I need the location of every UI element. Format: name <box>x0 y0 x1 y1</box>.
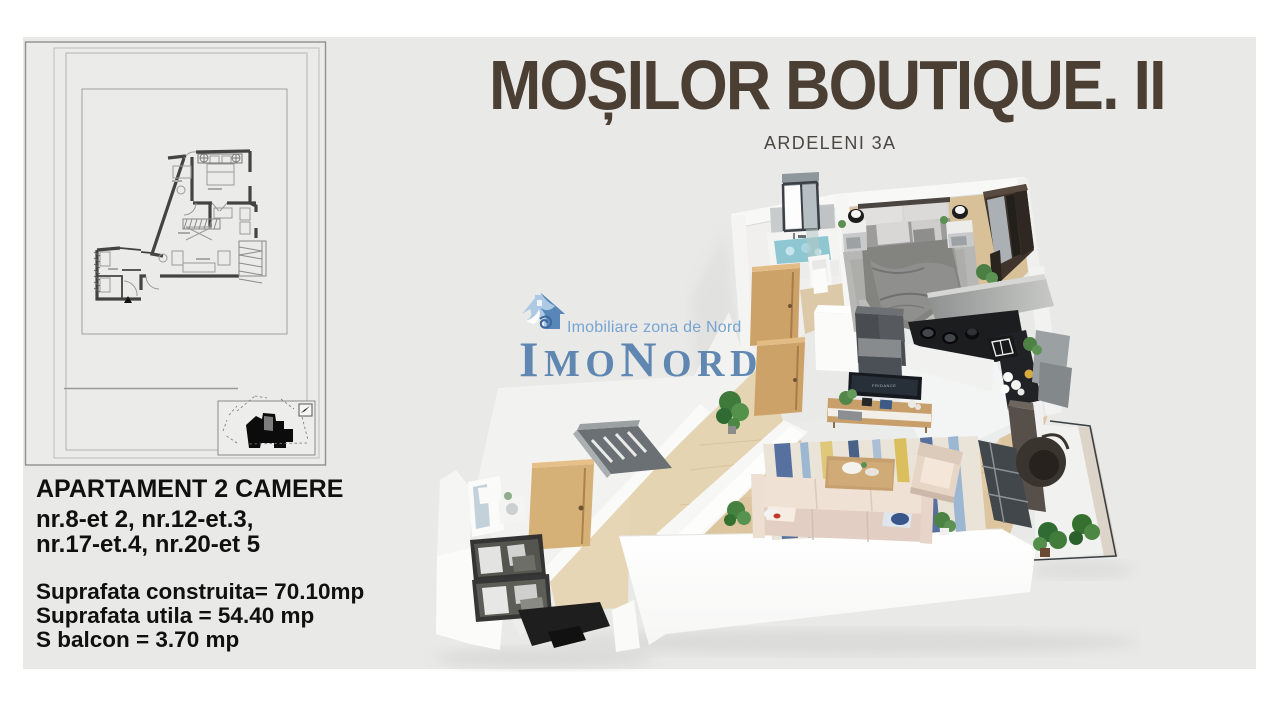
svg-text:FRIDANCE: FRIDANCE <box>872 383 896 388</box>
